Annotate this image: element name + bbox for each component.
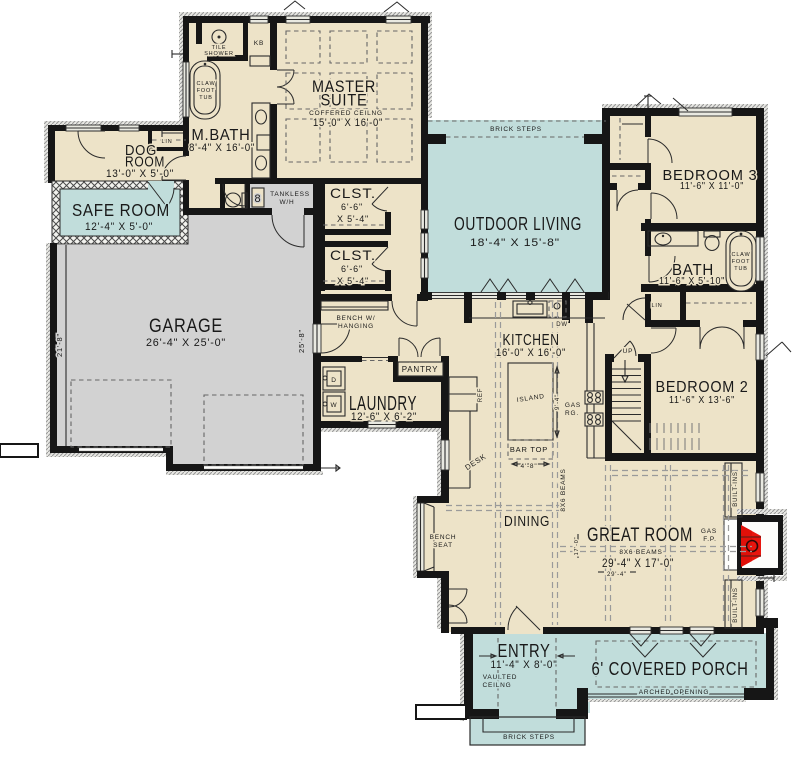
svg-text:6' COVERED PORCH: 6' COVERED PORCH — [592, 658, 749, 679]
svg-text:BUILT-INS: BUILT-INS — [733, 587, 739, 622]
svg-text:VAULTED: VAULTED — [483, 674, 518, 681]
svg-text:LIN: LIN — [652, 303, 663, 309]
svg-text:TANKLESS: TANKLESS — [270, 191, 310, 198]
svg-text:8X6 BEAMS: 8X6 BEAMS — [560, 468, 567, 511]
svg-text:8'-4" X 16'-0": 8'-4" X 16'-0" — [189, 142, 255, 154]
svg-text:17'-0": 17'-0" — [574, 537, 580, 556]
svg-text:CLST.: CLST. — [330, 247, 376, 263]
svg-text:CLST.: CLST. — [330, 185, 376, 201]
svg-text:26'-4" X 25'-0": 26'-4" X 25'-0" — [146, 337, 226, 349]
svg-text:8: 8 — [255, 193, 262, 205]
svg-text:DINING: DINING — [504, 513, 550, 530]
svg-text:FOOT: FOOT — [197, 88, 215, 94]
svg-text:11'-6" X 13'-6": 11'-6" X 13'-6" — [669, 394, 735, 406]
svg-text:BENCH W/: BENCH W/ — [337, 315, 376, 322]
svg-text:LIN: LIN — [162, 139, 173, 145]
svg-text:15'-0" X 16'-0": 15'-0" X 16'-0" — [313, 117, 383, 129]
svg-text:DW: DW — [556, 322, 568, 328]
svg-text:D: D — [331, 377, 337, 384]
svg-text:4'-8": 4'-8" — [521, 463, 538, 470]
svg-text:BENCH: BENCH — [430, 534, 457, 541]
svg-text:CLAW: CLAW — [732, 252, 751, 258]
svg-text:BRICK STEPS: BRICK STEPS — [490, 126, 542, 133]
svg-text:SUITE: SUITE — [321, 91, 368, 110]
svg-text:11'-6" X 11'-0": 11'-6" X 11'-0" — [680, 180, 744, 192]
svg-text:8X6 BEAMS: 8X6 BEAMS — [619, 549, 662, 556]
svg-text:SEAT: SEAT — [433, 542, 453, 549]
svg-text:BRICK STEPS: BRICK STEPS — [503, 734, 555, 741]
svg-text:X 5'-4": X 5'-4" — [337, 214, 369, 224]
svg-text:16'-0" X 16'-0": 16'-0" X 16'-0" — [496, 347, 566, 359]
svg-text:PANTRY: PANTRY — [402, 365, 439, 374]
svg-text:ENTRY: ENTRY — [498, 640, 551, 661]
svg-text:OUTDOOR LIVING: OUTDOOR LIVING — [454, 213, 582, 234]
svg-text:F.P.: F.P. — [703, 536, 717, 543]
svg-text:12'-4" X 5'-0": 12'-4" X 5'-0" — [85, 221, 153, 233]
svg-text:11'-4" X 8'-0": 11'-4" X 8'-0" — [491, 659, 558, 671]
svg-text:HANGING: HANGING — [338, 323, 374, 330]
svg-text:REF: REF — [478, 388, 484, 402]
svg-text:GREAT ROOM: GREAT ROOM — [587, 525, 693, 546]
svg-text:21'-8": 21'-8" — [55, 333, 64, 357]
svg-text:TUB: TUB — [734, 266, 747, 272]
svg-text:11'-6" X 5'-10": 11'-6" X 5'-10" — [659, 275, 725, 287]
svg-text:SAFE ROOM: SAFE ROOM — [72, 200, 170, 220]
svg-text:CLAW: CLAW — [197, 81, 216, 87]
svg-text:RG.: RG. — [565, 410, 579, 417]
svg-text:29'-4" X 17'-0": 29'-4" X 17'-0" — [602, 556, 674, 570]
svg-text:FOOT: FOOT — [732, 259, 750, 265]
svg-text:BUILT-INS: BUILT-INS — [733, 471, 739, 506]
svg-text:BAR TOP: BAR TOP — [510, 445, 548, 454]
svg-text:6'-6": 6'-6" — [341, 264, 363, 274]
svg-text:X 5'-4": X 5'-4" — [337, 276, 369, 286]
svg-text:12'-6" X 6'-2": 12'-6" X 6'-2" — [351, 411, 417, 423]
svg-text:KB: KB — [254, 40, 264, 47]
svg-text:GAS: GAS — [701, 528, 717, 535]
svg-text:SHOWER: SHOWER — [204, 51, 234, 57]
svg-text:18'-4" X 15'-8": 18'-4" X 15'-8" — [470, 237, 560, 249]
svg-text:W: W — [331, 402, 338, 409]
svg-text:6'-6": 6'-6" — [341, 202, 363, 212]
svg-text:13'-0" X 5'-0": 13'-0" X 5'-0" — [106, 168, 174, 180]
svg-text:TUB: TUB — [199, 95, 212, 101]
svg-text:GARAGE: GARAGE — [149, 316, 223, 337]
svg-text:25'-8": 25'-8" — [297, 329, 306, 353]
svg-text:ARCHED OPENING: ARCHED OPENING — [639, 689, 709, 696]
svg-text:29'-4": 29'-4" — [607, 572, 627, 578]
svg-text:W/H: W/H — [279, 199, 294, 206]
svg-text:COFFERED CEILNG: COFFERED CEILNG — [309, 110, 383, 117]
svg-text:9'-4": 9'-4" — [555, 394, 561, 410]
svg-text:UP: UP — [623, 348, 634, 355]
svg-text:GAS: GAS — [565, 402, 581, 409]
svg-text:CEILNG: CEILNG — [482, 682, 511, 689]
